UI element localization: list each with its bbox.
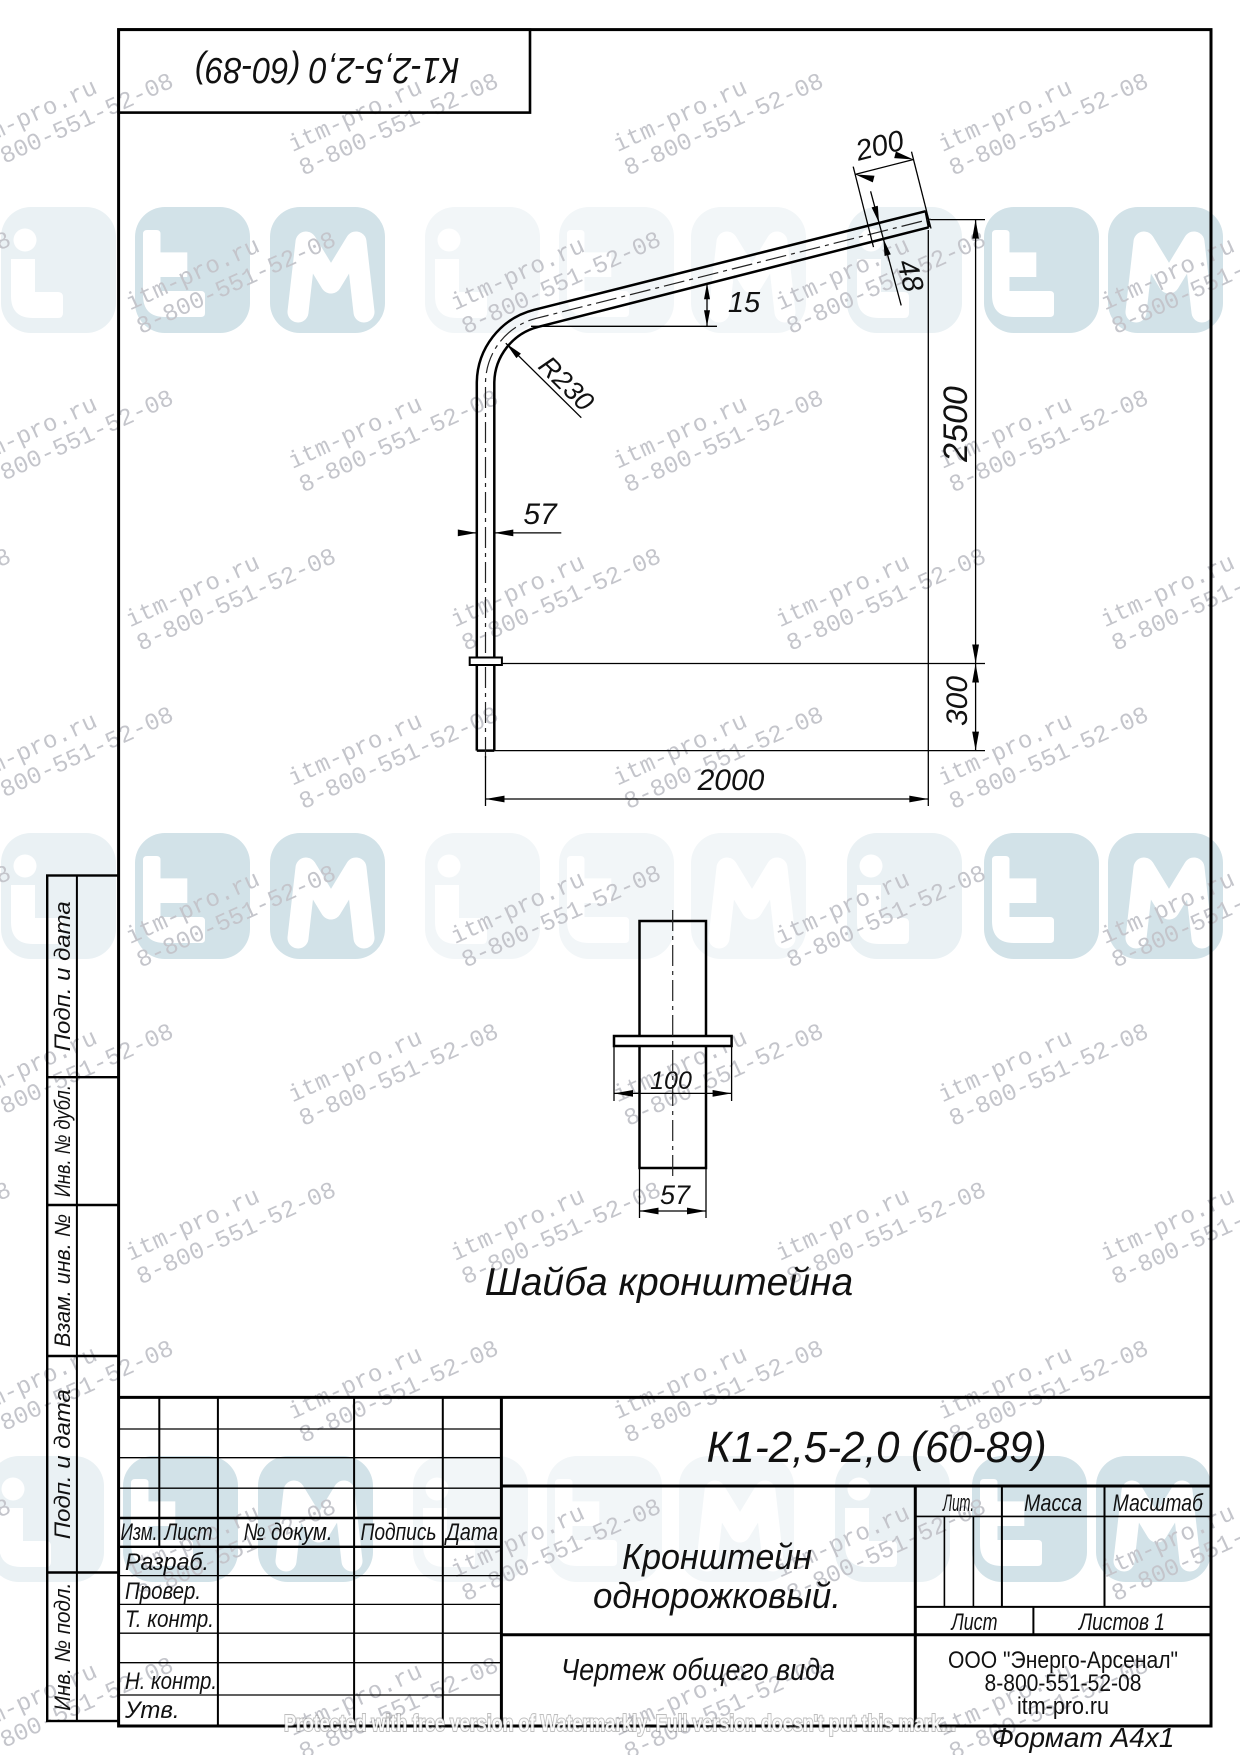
svg-text:Инв. № дубл.: Инв. № дубл. xyxy=(50,1085,75,1197)
svg-text:57: 57 xyxy=(660,1180,691,1210)
svg-text:К1-2,5-2,0 (60-89): К1-2,5-2,0 (60-89) xyxy=(707,1423,1047,1472)
svg-text:Чертеж общего вида: Чертеж общего вида xyxy=(561,1652,835,1687)
svg-text:Лист: Лист xyxy=(950,1609,997,1636)
svg-text:Лит.: Лит. xyxy=(942,1490,974,1517)
svg-text:Т. контр.: Т. контр. xyxy=(125,1606,214,1633)
svg-text:300: 300 xyxy=(941,676,974,726)
svg-text:Взам. инв. №: Взам. инв. № xyxy=(50,1214,75,1347)
svg-text:200: 200 xyxy=(851,125,907,168)
svg-text:2000: 2000 xyxy=(697,764,765,797)
svg-text:8-800-551-52-08: 8-800-551-52-08 xyxy=(0,544,16,658)
svg-text:57: 57 xyxy=(523,498,558,531)
svg-text:Инв. № подл.: Инв. № подл. xyxy=(50,1583,75,1711)
svg-text:Формат А4х1: Формат А4х1 xyxy=(992,1722,1175,1753)
svg-text:Подп. и дата: Подп. и дата xyxy=(50,901,75,1051)
svg-text:Подпись: Подпись xyxy=(361,1519,437,1546)
svg-text:Дата: Дата xyxy=(444,1519,498,1546)
svg-text:Масштаб: Масштаб xyxy=(1113,1490,1204,1517)
svg-text:Protected with free version of: Protected with free version of Watermark… xyxy=(284,1710,956,1736)
svg-text:Кронштейн: Кронштейн xyxy=(622,1536,812,1577)
svg-text:Масса: Масса xyxy=(1024,1490,1082,1517)
svg-text:Лист: Лист xyxy=(163,1519,213,1546)
svg-text:2500: 2500 xyxy=(937,386,975,463)
svg-text:8-800-551-52-08: 8-800-551-52-08 xyxy=(0,1178,16,1292)
svg-text:Изм.: Изм. xyxy=(121,1519,158,1546)
svg-text:R230: R230 xyxy=(533,350,600,417)
svg-text:№ докум.: № докум. xyxy=(244,1519,333,1546)
svg-text:Шайба кронштейна: Шайба кронштейна xyxy=(485,1261,853,1304)
svg-text:100: 100 xyxy=(650,1067,692,1095)
svg-text:Листов 1: Листов 1 xyxy=(1077,1609,1165,1636)
svg-text:Провер.: Провер. xyxy=(125,1578,201,1605)
svg-text:однорожковый.: однорожковый. xyxy=(593,1575,841,1616)
svg-text:Утв.: Утв. xyxy=(124,1697,180,1724)
svg-text:Н. контр.: Н. контр. xyxy=(125,1668,217,1695)
svg-text:К1-2,5-2,0 (60-89): К1-2,5-2,0 (60-89) xyxy=(195,50,460,91)
svg-text:Разраб.: Разраб. xyxy=(125,1549,209,1576)
svg-text:Подп. и дата: Подп. и дата xyxy=(50,1389,75,1539)
svg-text:itm-pro.ru: itm-pro.ru xyxy=(1017,1693,1109,1720)
svg-text:15: 15 xyxy=(728,287,761,319)
